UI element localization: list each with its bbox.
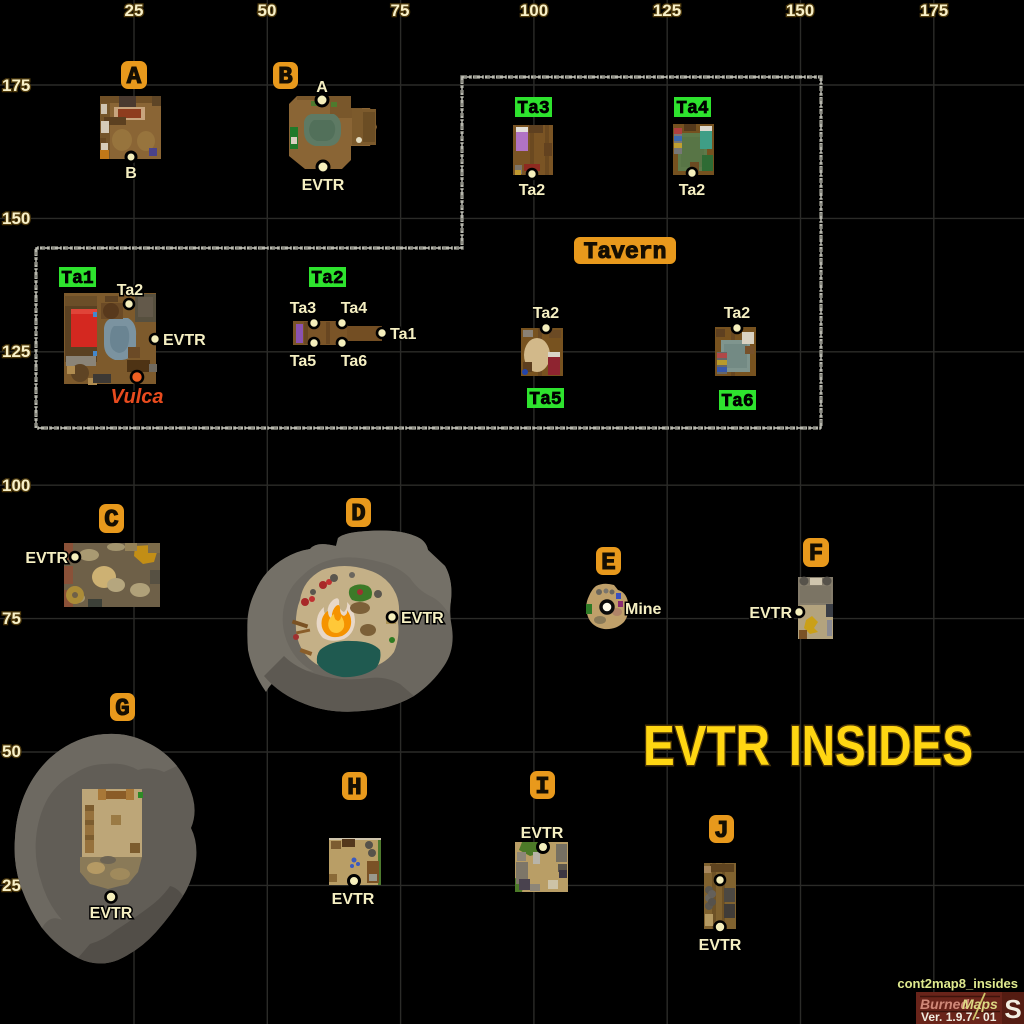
svg-text:Ta2: Ta2 xyxy=(679,182,705,199)
svg-text:EVTR: EVTR xyxy=(401,610,444,627)
svg-text:J: J xyxy=(714,818,728,845)
svg-text:100: 100 xyxy=(520,1,548,20)
svg-text:Ta5: Ta5 xyxy=(529,390,561,410)
svg-text:D: D xyxy=(351,501,365,528)
svg-text:Ta4: Ta4 xyxy=(341,300,367,317)
svg-text:175: 175 xyxy=(920,1,948,20)
svg-text:50: 50 xyxy=(258,1,277,20)
svg-text:Ta1: Ta1 xyxy=(61,269,94,289)
svg-text:175: 175 xyxy=(2,76,30,95)
svg-text:75: 75 xyxy=(2,609,21,628)
svg-text:50: 50 xyxy=(2,742,21,761)
svg-text:Ta3: Ta3 xyxy=(290,300,316,317)
svg-text:cont2map8_insides: cont2map8_insides xyxy=(897,976,1018,991)
svg-text:Ta1: Ta1 xyxy=(390,326,416,343)
svg-text:25: 25 xyxy=(2,876,21,895)
svg-text:150: 150 xyxy=(2,209,30,228)
svg-text:EVTR: EVTR xyxy=(521,825,564,842)
svg-text:150: 150 xyxy=(786,1,814,20)
svg-text:B: B xyxy=(278,64,292,91)
svg-text:Ta4: Ta4 xyxy=(676,99,709,119)
svg-text:Ta2: Ta2 xyxy=(724,305,750,322)
svg-text:S: S xyxy=(1004,994,1021,1024)
svg-text:EVTR: EVTR xyxy=(699,937,742,954)
svg-text:A: A xyxy=(127,64,142,91)
svg-text:125: 125 xyxy=(2,342,30,361)
svg-text:E: E xyxy=(601,550,615,577)
svg-text:F: F xyxy=(809,541,823,568)
svg-text:A: A xyxy=(316,79,328,96)
svg-text:75: 75 xyxy=(391,1,410,20)
svg-text:Vulca: Vulca xyxy=(111,386,164,408)
svg-text:EVTR: EVTR xyxy=(25,550,68,567)
svg-text:Ta2: Ta2 xyxy=(519,182,545,199)
svg-text:EVTR: EVTR xyxy=(90,905,133,922)
svg-text:25: 25 xyxy=(125,1,144,20)
svg-text:EVTR: EVTR xyxy=(302,177,345,194)
svg-text:Ta2: Ta2 xyxy=(311,269,343,289)
svg-text:I: I xyxy=(535,774,549,801)
svg-text:Ta6: Ta6 xyxy=(341,353,367,370)
svg-text:Ver. 1.9.7 - 01: Ver. 1.9.7 - 01 xyxy=(921,1010,997,1024)
svg-text:100: 100 xyxy=(2,476,30,495)
svg-text:B: B xyxy=(125,165,137,182)
svg-text:125: 125 xyxy=(653,1,681,20)
svg-text:C: C xyxy=(104,507,118,534)
svg-text:EVTR: EVTR xyxy=(332,891,375,908)
svg-text:INSIDES: INSIDES xyxy=(789,714,973,778)
svg-text:Tavern: Tavern xyxy=(584,239,667,265)
svg-text:Ta5: Ta5 xyxy=(290,353,316,370)
svg-text:G: G xyxy=(115,696,129,723)
svg-text:Ta6: Ta6 xyxy=(721,392,753,412)
svg-text:Mine: Mine xyxy=(625,601,662,618)
svg-text:Ta2: Ta2 xyxy=(533,305,559,322)
svg-text:EVTR: EVTR xyxy=(643,714,770,778)
svg-text:EVTR: EVTR xyxy=(749,605,792,622)
svg-text:EVTR: EVTR xyxy=(163,332,206,349)
svg-text:Ta2: Ta2 xyxy=(117,282,143,299)
svg-text:Ta3: Ta3 xyxy=(517,99,549,119)
svg-text:H: H xyxy=(347,775,361,802)
